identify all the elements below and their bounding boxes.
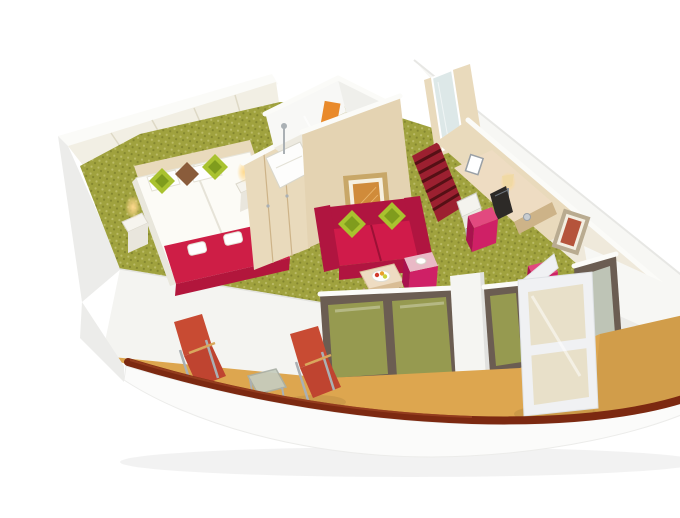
bedside-lamp-left [125,195,141,219]
open-glass-door [514,254,598,423]
door-pane-2 [392,297,452,377]
fruit-red [375,273,379,277]
suite-cutaway-svg [40,16,680,502]
cabin-rendering [40,16,680,502]
door-pane-1 [328,301,388,378]
wardrobe-handle-2 [285,194,288,197]
shower-head [281,123,287,129]
cup [416,258,426,264]
kettle [524,214,531,221]
wardrobe-handle-1 [266,204,269,207]
fruit-green [383,274,387,278]
